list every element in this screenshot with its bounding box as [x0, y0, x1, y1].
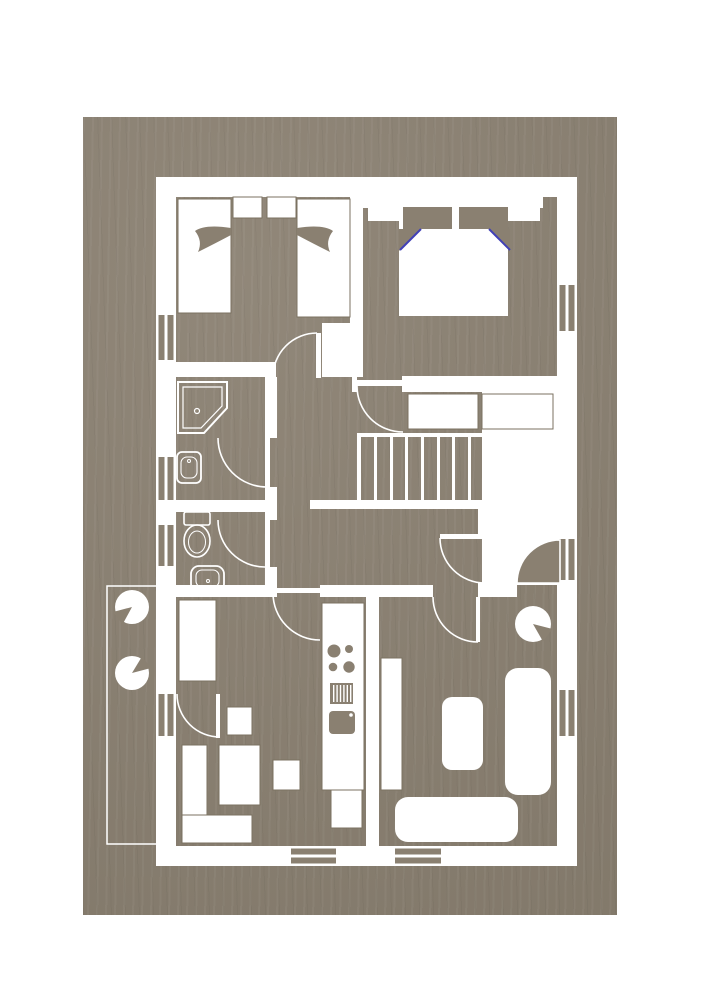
floor-plan-page: [0, 0, 706, 1000]
tv-cabinet: [381, 658, 402, 790]
nightstand-2: [267, 197, 296, 218]
grill-stripe: [343, 685, 344, 702]
stairs-top-line: [357, 433, 482, 437]
window-landing-east-pane: [569, 539, 575, 580]
wall-master-south-b: [402, 376, 557, 392]
stair-tread-line: [390, 437, 393, 500]
dining-chair-2: [273, 760, 300, 790]
grill-stripe: [350, 685, 351, 702]
stair-tread-line: [405, 437, 408, 500]
wall-south-band-b: [320, 585, 433, 597]
door-leaf-wc: [265, 520, 270, 567]
wall-outer-left: [156, 177, 176, 866]
door-arc-bathroom: [218, 438, 267, 487]
wall-kitchen-living-divider: [366, 597, 379, 846]
stair-tread-line: [468, 437, 471, 500]
kitchen-island-lower: [331, 790, 362, 828]
window-living-south-pane: [395, 849, 441, 855]
sofa-right: [505, 668, 551, 795]
wall-bath-wc-divider: [176, 500, 265, 512]
window-living-south-pane: [395, 858, 441, 864]
toilet-bowl-inner: [189, 531, 206, 553]
dining-bench-horizontal: [182, 815, 252, 843]
stair-tread-line: [437, 437, 440, 500]
bidet-inner: [196, 570, 219, 587]
dining-table: [219, 745, 260, 805]
closet-2: [482, 394, 553, 429]
wall-hall-west-b: [265, 487, 277, 520]
grill-stripe: [333, 685, 334, 702]
wall-bedroom-divider: [350, 197, 363, 377]
grill-stripe: [347, 685, 348, 702]
terrace-outline: [107, 586, 157, 844]
door-arc-wc: [218, 520, 265, 567]
door-arc-bedroom1: [273, 333, 317, 377]
stair-tread-line: [421, 437, 424, 500]
master-nightstand-right: [507, 196, 540, 221]
master-pillow-right: [459, 207, 508, 229]
washbasin-tap-dot: [188, 460, 191, 463]
closet-1: [408, 394, 478, 429]
window-wc-west-pane: [159, 525, 165, 566]
door-leaf-living: [476, 597, 480, 642]
terrace-door-opening-pane: [159, 694, 165, 736]
door-arc-terrace: [177, 694, 220, 737]
nightstand-1: [233, 197, 262, 218]
wall-outer-top: [156, 177, 577, 197]
door-arc-kitchen: [273, 593, 320, 640]
window-bedroom1-west-pane: [159, 315, 165, 360]
master-pillow-left: [403, 207, 452, 229]
grill-stripe: [336, 685, 337, 702]
dining-chair-1: [227, 707, 252, 735]
washbasin-inner: [181, 457, 197, 478]
door-arc-hall-landing: [440, 538, 485, 583]
window-bathroom-west-pane: [159, 457, 165, 500]
door-leaf-bathroom: [265, 438, 270, 487]
wall-outer-bottom: [156, 846, 577, 866]
master-nightstand-left: [368, 196, 399, 221]
terrace-door-opening-pane: [168, 694, 174, 736]
wall-outer-right: [557, 177, 577, 866]
floor-plan-drawing: [0, 0, 706, 1000]
kitchen-counter: [179, 600, 216, 681]
window-kitchen-south-pane: [291, 849, 336, 855]
wall-hall-east-b: [478, 583, 490, 597]
coffee-table: [442, 697, 483, 770]
window-bathroom-west-pane: [168, 457, 174, 500]
sofa-bottom: [395, 797, 518, 842]
bidet-tap-dot: [207, 580, 210, 583]
toilet-bowl: [184, 525, 210, 557]
cooktop-burner: [328, 645, 341, 658]
door-leaf-kitchen: [273, 588, 320, 593]
door-leaf-hall-landing: [440, 534, 485, 539]
wall-hall-west-a: [265, 377, 277, 438]
door-leaf-master: [357, 380, 402, 386]
toilet-tank: [184, 512, 210, 525]
door-arc-living: [433, 597, 478, 642]
window-bedroom1-west-pane: [168, 315, 174, 360]
sink-faucet-dot: [349, 713, 353, 717]
door-leaf-bedroom1: [316, 333, 321, 378]
single-bed-1: [178, 199, 231, 313]
shower-outer: [178, 382, 227, 433]
stair-tread-line: [374, 437, 377, 500]
stairs-left-line: [357, 433, 361, 500]
door-arc-master: [357, 386, 403, 432]
window-wc-west-pane: [168, 525, 174, 566]
cooktop-burner: [329, 663, 338, 672]
window-master-east-pane: [569, 285, 575, 331]
wall-bedroom1-south: [176, 362, 276, 377]
stair-tread-line: [452, 437, 455, 500]
stairs-rail-strip: [310, 500, 482, 509]
shower-inner: [183, 387, 222, 428]
window-kitchen-south-pane: [291, 858, 336, 864]
grill-stripe: [340, 685, 341, 702]
door-leaf-terrace: [216, 694, 220, 738]
wall-master-south-a: [352, 376, 357, 392]
single-bed-2: [297, 199, 350, 317]
wall-bedroom1-door-block: [322, 323, 350, 377]
window-living-east-pane: [569, 690, 575, 736]
cooktop-burner: [343, 661, 354, 672]
window-master-east-pane: [560, 285, 566, 331]
window-living-east-pane: [560, 690, 566, 736]
shower-drain: [195, 409, 200, 414]
cooktop-burner: [345, 645, 353, 653]
